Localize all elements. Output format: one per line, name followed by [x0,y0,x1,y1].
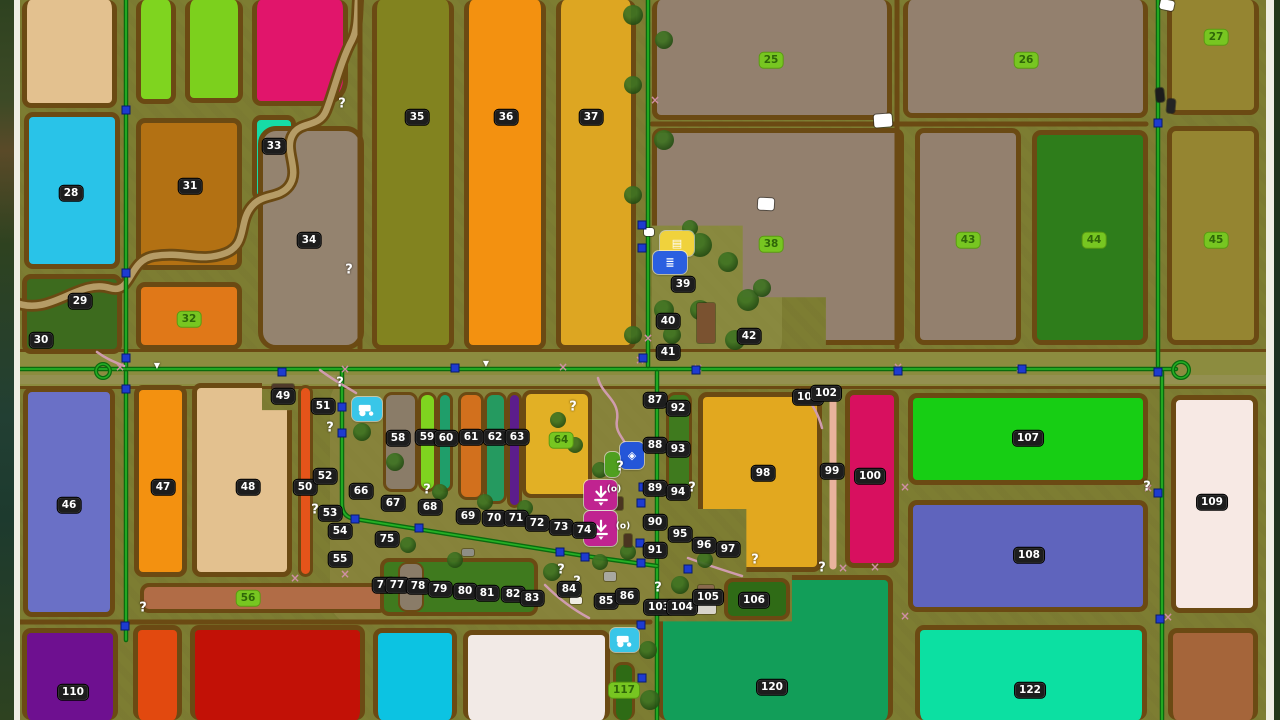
field-label-43: 43 [956,232,981,249]
field-label-102: 102 [810,385,842,402]
map-marker-icon[interactable]: ? [423,484,431,497]
fuel-station-icon-glyph: ≣ [665,257,674,268]
field-label-49: 49 [271,388,296,405]
path-cross-mark: × [558,361,568,373]
path-cross-mark: × [650,94,660,106]
path-cross-mark: × [115,361,125,373]
field-label-56: 56 [236,590,261,607]
shop-icon-glyph: ▤ [672,238,682,249]
field-label-64: 64 [549,432,574,449]
field-label-47: 47 [151,479,176,496]
path-cross-mark: × [340,363,350,375]
field-label-83: 83 [520,590,545,607]
tree [639,641,657,659]
field-label-88: 88 [643,437,668,454]
tree [447,552,463,568]
map-edge-right-outside [1274,0,1280,720]
tree [432,484,448,500]
tree [624,186,642,204]
field-label-90: 90 [643,514,668,531]
field-label-27: 27 [1204,29,1229,46]
field-label-34: 34 [297,232,322,249]
field-label-29: 29 [68,293,93,310]
fuel-station-icon[interactable]: ≣ [653,251,687,274]
route-waypoint [1154,119,1163,128]
map-marker-icon[interactable]: ? [654,582,662,595]
route-waypoint [1018,365,1027,374]
field-label-78: 78 [406,578,431,595]
route-waypoint [639,354,648,363]
tree [623,5,643,25]
field-label-66: 66 [349,483,374,500]
field-label-79: 79 [428,581,453,598]
field-label-55: 55 [328,551,353,568]
field-label-98: 98 [751,465,776,482]
field-label-94: 94 [666,484,691,501]
route-waypoint [122,269,131,278]
route-waypoint [684,565,693,574]
field-label-37: 37 [579,109,604,126]
path-cross-mark: × [340,568,350,580]
river-bank [14,0,358,306]
water-poi-icon-glyph: ◈ [628,450,636,461]
field-label-110: 110 [57,684,89,701]
building [462,549,474,556]
field-label-36: 36 [494,109,519,126]
field-label-30: 30 [29,332,54,349]
field-label-67: 67 [381,495,406,512]
field-label-26: 26 [1014,52,1039,69]
tree [753,279,771,297]
field-label-75: 75 [375,531,400,548]
route-waypoint [638,674,647,683]
tree [550,412,566,428]
route-waypoint [338,403,347,412]
map-marker-icon[interactable]: ? [139,602,147,615]
field-label-58: 58 [386,430,411,447]
field-label-109: 109 [1196,494,1228,511]
field-label-39: 39 [671,276,696,293]
field-label-108: 108 [1013,547,1045,564]
route-waypoint [894,367,903,376]
tree [353,423,371,441]
tree [671,576,689,594]
tree [697,552,713,568]
field-label-44: 44 [1082,232,1107,249]
field-label-51: 51 [311,398,336,415]
field-label-63: 63 [505,429,530,446]
route-waypoint [638,244,647,253]
field-label-31: 31 [178,178,203,195]
field-label-87: 87 [643,392,668,409]
tree [718,252,738,272]
route-waypoint [451,364,460,373]
vehicle-shop-icon-2[interactable] [610,628,639,652]
tree [640,690,660,710]
route-waypoint [122,385,131,394]
field-label-74: 74 [572,522,597,539]
field-label-89: 89 [643,480,668,497]
field-label-25: 25 [759,52,784,69]
map-marker-icon[interactable]: ? [818,562,826,575]
field-label-46: 46 [57,497,82,514]
field-label-45: 45 [1204,232,1229,249]
field-label-107: 107 [1012,430,1044,447]
field-label-117: 117 [608,682,640,699]
field-label-32: 32 [177,311,202,328]
field-label-70: 70 [482,510,507,527]
field-label-91: 91 [643,542,668,559]
field-label-96: 96 [692,537,717,554]
route-waypoint [122,354,131,363]
field-label-81: 81 [475,585,500,602]
tree [592,554,608,570]
game-map: ××××××××××××××××××????????????????(o)(o)… [0,0,1280,720]
field-label-42: 42 [737,328,762,345]
field-label-60: 60 [434,430,459,447]
field-label-73: 73 [549,519,574,536]
field-label-95: 95 [668,526,693,543]
map-marker-icon[interactable]: ? [345,264,353,277]
route-waypoint [415,524,424,533]
map-marker-icon[interactable]: ? [1143,481,1151,494]
field-label-80: 80 [453,583,478,600]
building [624,534,632,547]
route-waypoint [338,429,347,438]
map-marker-icon[interactable]: ? [336,377,344,390]
map-marker-icon[interactable]: (o) [607,486,621,495]
field-label-41: 41 [656,344,681,361]
route-waypoint [1154,489,1163,498]
field-label-40: 40 [656,313,681,330]
vehicle-shop-icon[interactable] [352,397,382,421]
field-label-122: 122 [1014,682,1046,699]
tree [655,31,673,49]
field-label-61: 61 [459,429,484,446]
building [604,572,616,581]
field-label-53: 53 [318,505,343,522]
route-waypoint [556,548,565,557]
map-marker-icon[interactable]: ? [326,422,334,435]
map-marker-icon[interactable]: ? [751,554,759,567]
tree [400,537,416,553]
field-label-100: 100 [854,468,886,485]
tree [654,130,674,150]
path-cross-mark: × [900,481,910,493]
map-marker-icon[interactable]: (o) [616,523,630,532]
field-label-106: 106 [738,592,770,609]
route-waypoint [1156,615,1165,624]
route-waypoint [637,499,646,508]
building [697,303,715,343]
map-marker-icon[interactable]: ▼ [483,360,489,368]
field-label-86: 86 [615,588,640,605]
field-label-68: 68 [418,499,443,516]
map-marker-icon[interactable]: ? [557,564,565,577]
route-waypoint [692,366,701,375]
map-marker-icon[interactable]: ? [616,461,624,474]
tree [386,453,404,471]
vehicle-icon [758,198,775,211]
field-label-120: 120 [756,679,788,696]
field-label-48: 48 [236,479,261,496]
field-label-52: 52 [313,468,338,485]
field-label-35: 35 [405,109,430,126]
route-waypoint [278,368,287,377]
vehicle-icon [874,113,893,127]
field-label-62: 62 [483,429,508,446]
map-edge-left-outside [0,0,14,720]
field-label-99: 99 [820,463,845,480]
tree [624,326,642,344]
map-marker-icon[interactable]: ? [569,401,577,414]
path-cross-mark: × [643,332,653,344]
field-label-97: 97 [716,541,741,558]
path-cross-mark: × [900,610,910,622]
route-waypoint [637,621,646,630]
field-label-105: 105 [692,589,724,606]
field-label-84: 84 [557,581,582,598]
path-cross-mark: × [870,561,880,573]
tree [624,76,642,94]
field-label-72: 72 [525,515,550,532]
route-waypoint [638,221,647,230]
route-waypoint [637,559,646,568]
tree [477,494,493,510]
map-border-left [14,0,20,720]
field-label-54: 54 [328,523,353,540]
route-waypoint [351,515,360,524]
route-waypoint [581,553,590,562]
route-waypoint [121,622,130,631]
path-cross-mark: × [838,562,848,574]
field-label-92: 92 [666,400,691,417]
field-label-69: 69 [456,508,481,525]
field-label-38: 38 [759,236,784,253]
map-marker-icon[interactable]: ? [338,98,346,111]
field-label-93: 93 [666,441,691,458]
route-waypoint [1154,368,1163,377]
map-marker-icon[interactable]: ▼ [154,362,160,370]
path-cross-mark: × [290,572,300,584]
map-border-right [1266,0,1274,720]
field-label-33: 33 [262,138,287,155]
building [570,597,582,604]
vehicle-icon [1166,99,1175,114]
field-label-28: 28 [59,185,84,202]
route-waypoint [122,106,131,115]
vehicle-icon [1155,88,1164,103]
